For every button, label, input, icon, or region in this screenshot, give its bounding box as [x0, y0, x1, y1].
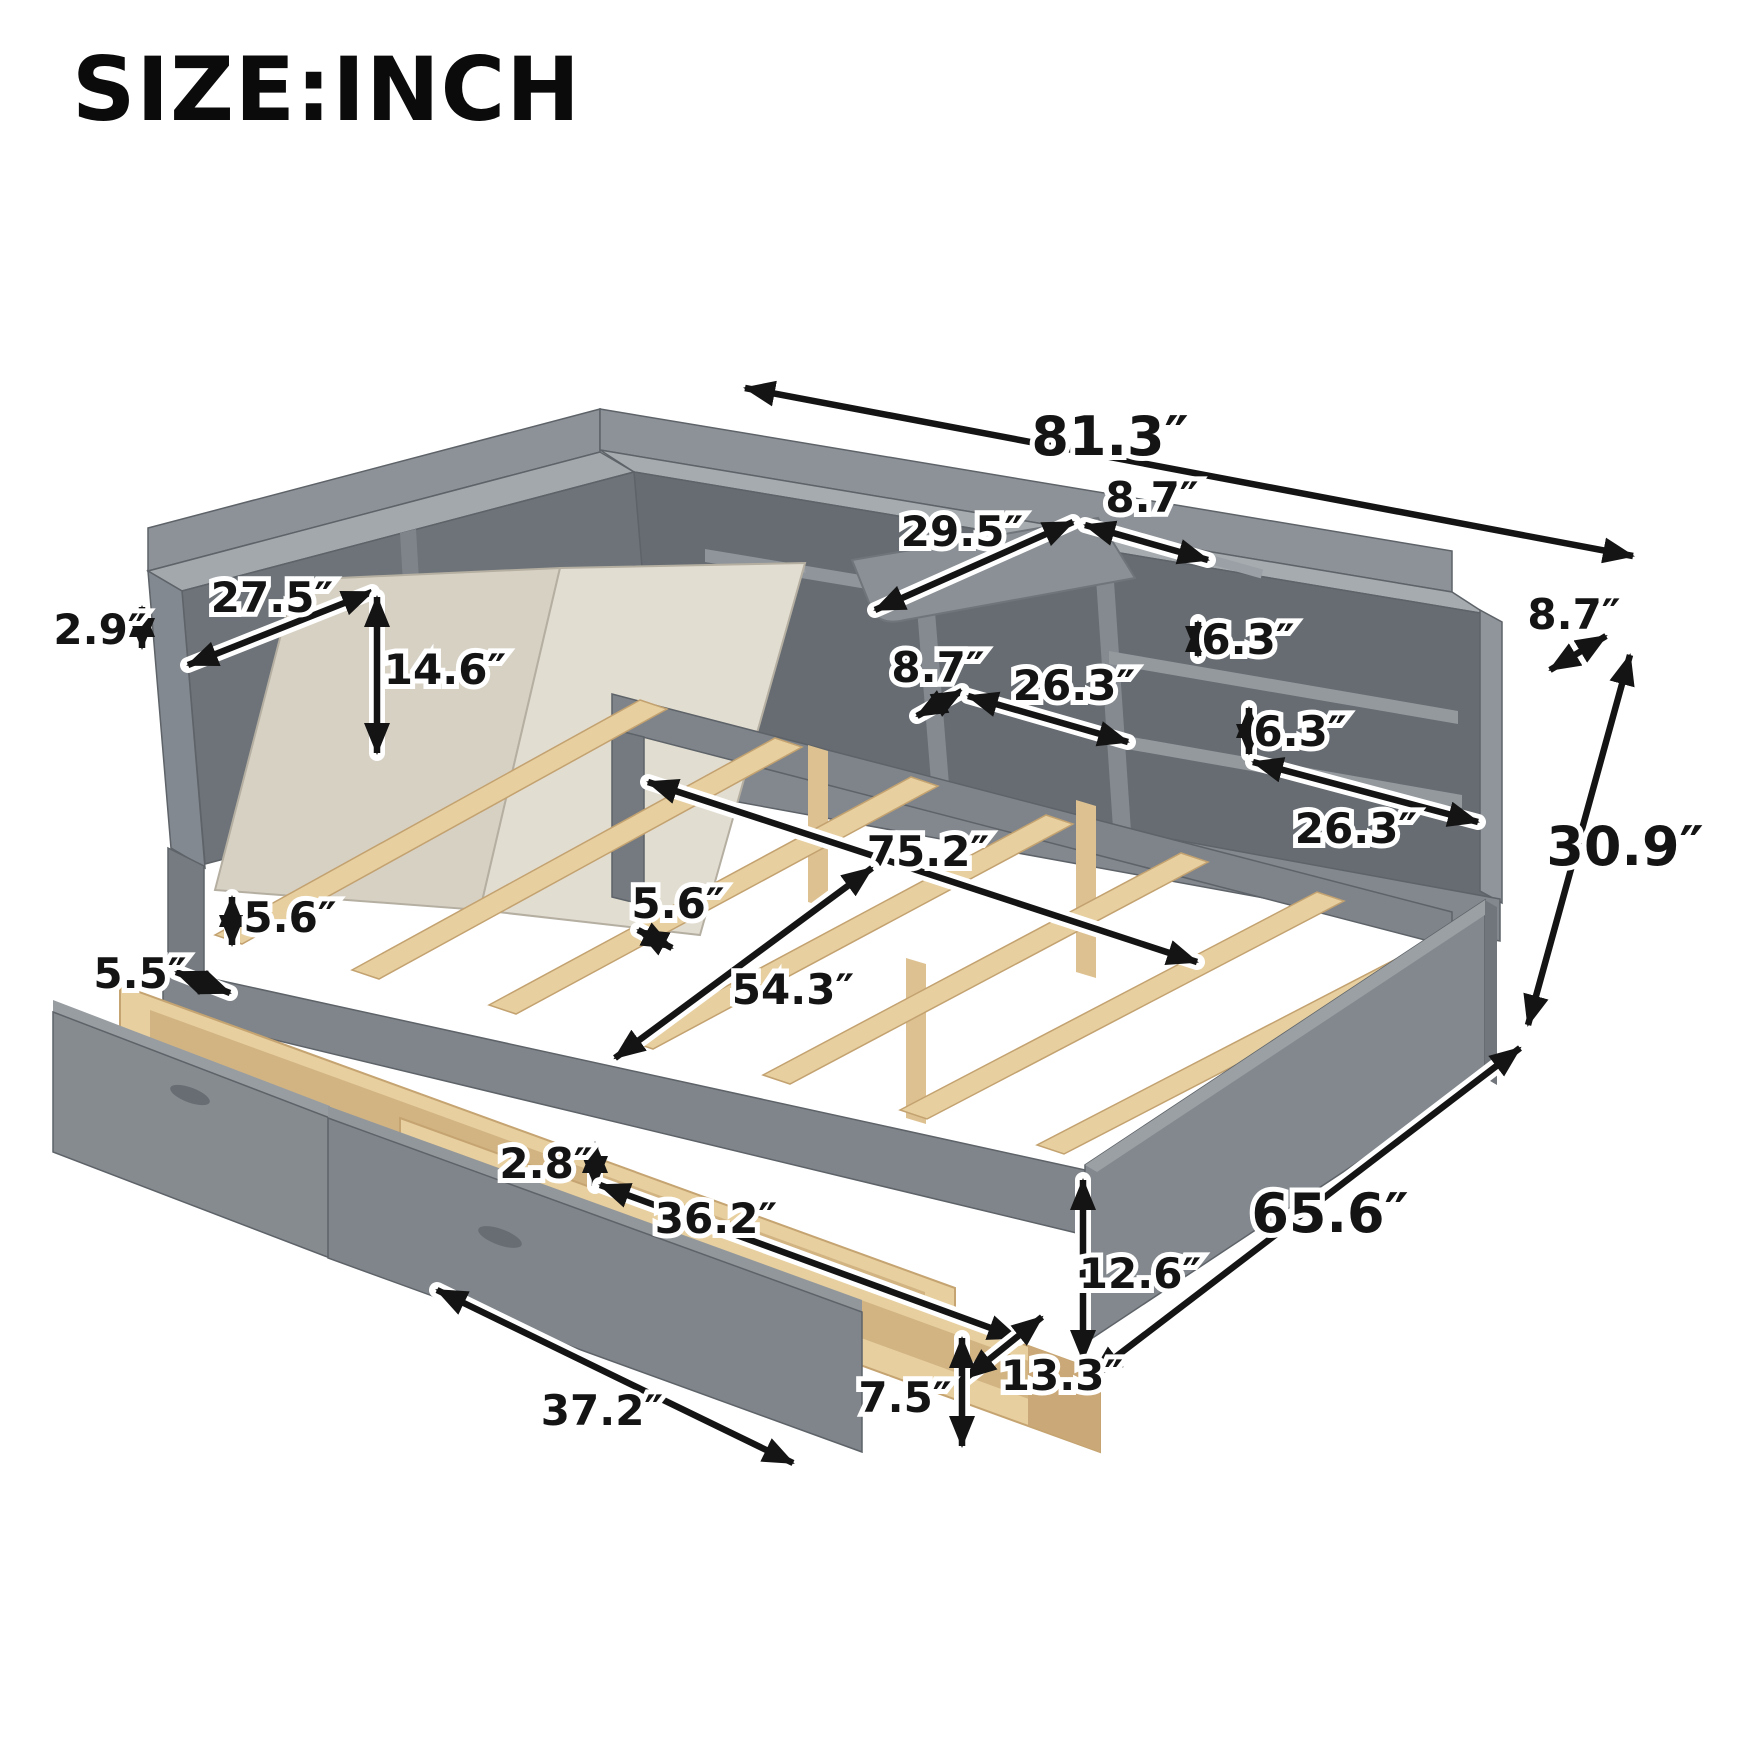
- headboard-right-end-panel: [1480, 610, 1502, 903]
- dimension-label: 12.6″: [1079, 1249, 1201, 1298]
- dim-upper-cubby-height: 6.3″: [1198, 615, 1295, 664]
- dimension-label: 65.6″: [1251, 1182, 1408, 1245]
- dimension-label: 75.2″: [867, 827, 989, 876]
- dim-lower-cubby-height: 6.3″: [1249, 707, 1347, 756]
- dimension-label: 2.9″: [53, 605, 146, 654]
- dimension-label: 29.5″: [901, 507, 1023, 556]
- dimension-label: 36.2″: [655, 1194, 777, 1243]
- dimension-label: 30.9″: [1546, 815, 1703, 878]
- dimension-label: 13.3″: [1001, 1351, 1123, 1400]
- dimension-label: 6.3″: [1253, 707, 1346, 756]
- dimension-diagram: SIZE:INCH: [0, 0, 1757, 1757]
- dim-back-lip-height: 2.9″: [53, 605, 146, 654]
- dimension-label: 5.5″: [93, 949, 186, 998]
- dimension-label: 37.2″: [541, 1386, 663, 1435]
- dim-drawer-rim-height: 2.8″: [499, 1139, 595, 1188]
- dimension-label: 8.7″: [1527, 590, 1620, 639]
- dim-headboard-clearance: 5.6″: [232, 893, 337, 945]
- dimension-label: 8.7″: [891, 643, 984, 692]
- dimension-label: 7.5″: [858, 1373, 951, 1422]
- dim-right-end-depth: 8.7″: [1527, 590, 1620, 670]
- dim-overall-height: 30.9″: [1528, 655, 1704, 1025]
- dimension-label: 27.5″: [211, 573, 333, 622]
- dimension-label: 54.3″: [732, 965, 854, 1014]
- dimension-label: 8.7″: [1105, 473, 1198, 522]
- dimension-label: 81.3″: [1031, 405, 1188, 468]
- dimension-label: 26.3″: [1013, 661, 1135, 710]
- dimension-label: 5.6″: [243, 893, 336, 942]
- dimension-label: 2.8″: [499, 1139, 592, 1188]
- bed-diagram-canvas: 81.3″ 8.7″ 29.5″ 27.5″ 2.9″: [0, 0, 1757, 1757]
- dim-slat-gap: 5.6″: [631, 879, 724, 948]
- dimension-label: 14.6″: [384, 645, 506, 694]
- dim-side-rail-width: 5.5″: [93, 949, 230, 998]
- dimension-label: 6.3″: [1201, 615, 1294, 664]
- dimension-label: 5.6″: [631, 879, 724, 928]
- wood-post-2: [1076, 800, 1096, 978]
- dimension-label: 26.3″: [1295, 804, 1417, 853]
